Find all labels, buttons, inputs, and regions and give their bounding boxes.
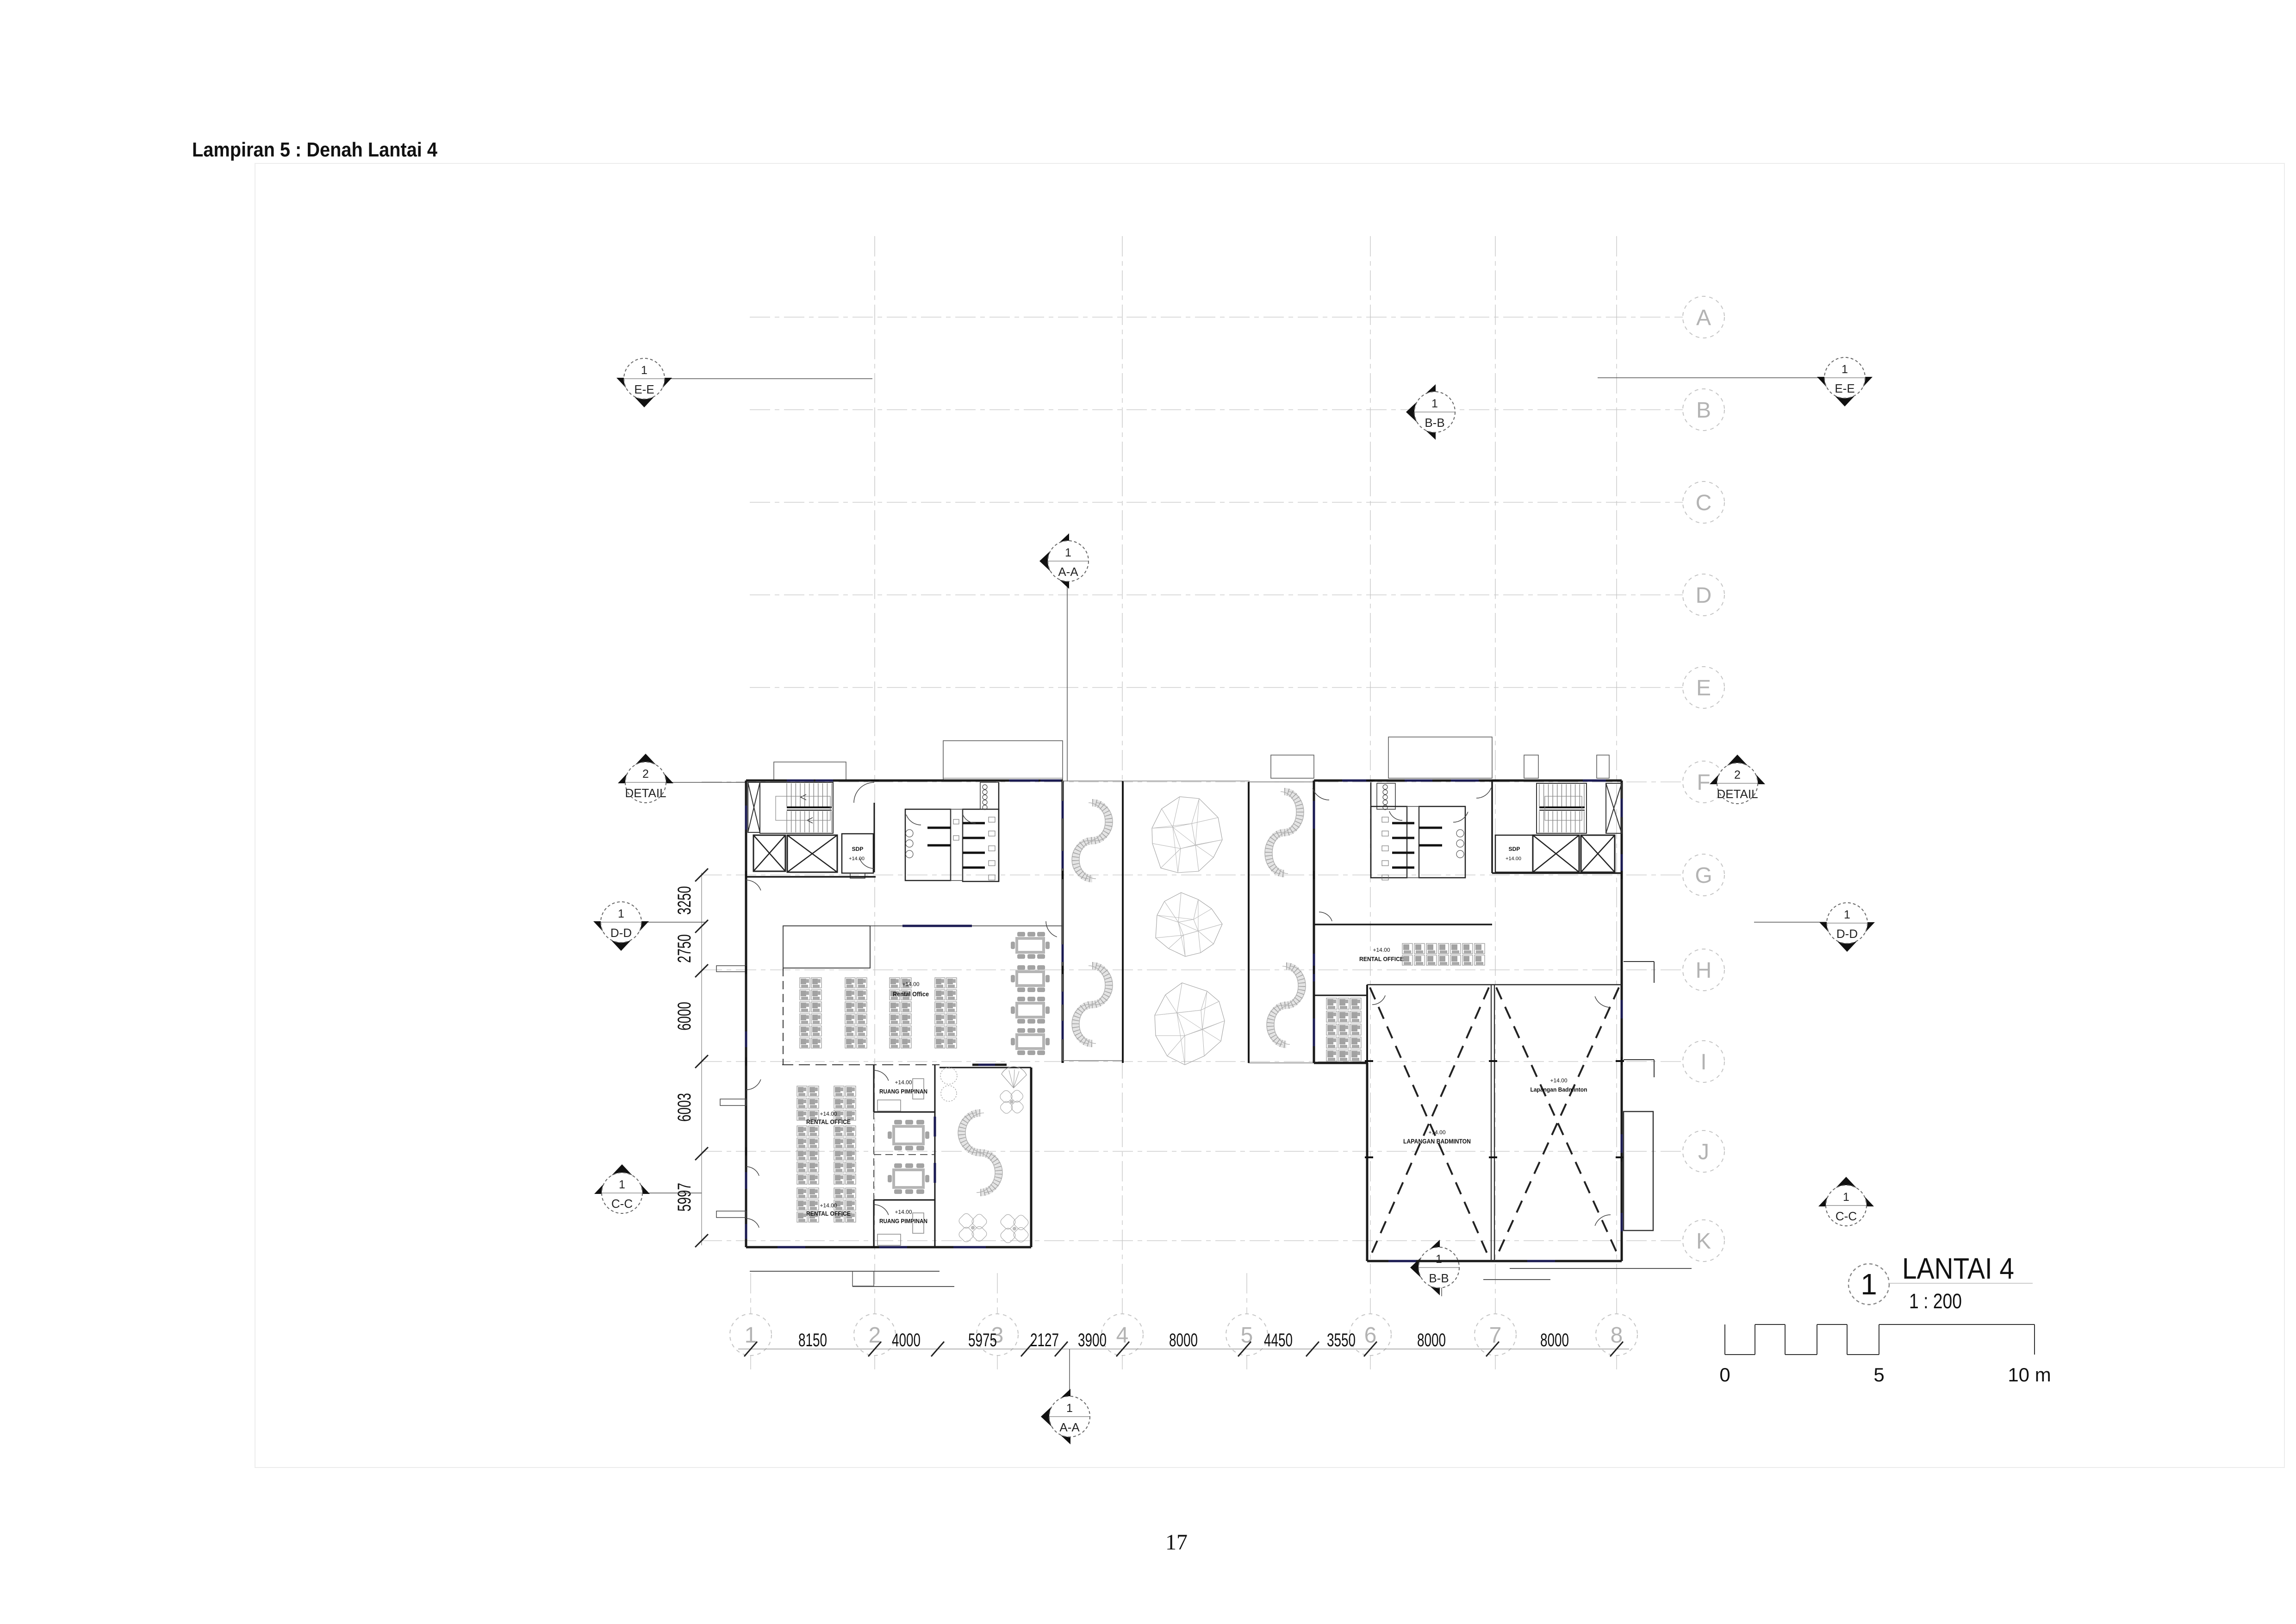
svg-text:8000: 8000 xyxy=(1169,1330,1198,1350)
svg-text:1: 1 xyxy=(1842,363,1848,376)
svg-text:RUANG PIMPINAN: RUANG PIMPINAN xyxy=(879,1088,927,1095)
svg-text:6003: 6003 xyxy=(674,1093,695,1122)
svg-text:B-B: B-B xyxy=(1429,1271,1449,1285)
svg-text:+14.00: +14.00 xyxy=(902,981,919,987)
svg-text:+14.00: +14.00 xyxy=(820,1111,837,1117)
svg-text:1: 1 xyxy=(619,1178,625,1191)
svg-text:+14.00: +14.00 xyxy=(1428,1129,1445,1136)
svg-text:RENTAL OFFICE: RENTAL OFFICE xyxy=(806,1118,851,1125)
svg-text:+14.00: +14.00 xyxy=(1506,856,1521,862)
svg-text:1 : 200: 1 : 200 xyxy=(1909,1289,1962,1313)
svg-text:1: 1 xyxy=(1843,1191,1849,1204)
svg-text:Lapangan Badminton: Lapangan Badminton xyxy=(1531,1086,1587,1093)
svg-text:1: 1 xyxy=(1844,908,1850,921)
svg-text:C: C xyxy=(1696,491,1712,515)
svg-text:1: 1 xyxy=(641,364,647,377)
svg-text:17: 17 xyxy=(1165,1530,1188,1555)
svg-text:1: 1 xyxy=(618,907,624,920)
svg-text:RUANG PIMPINAN: RUANG PIMPINAN xyxy=(879,1218,927,1224)
svg-text:2127: 2127 xyxy=(1030,1330,1059,1350)
svg-text:0: 0 xyxy=(1719,1364,1730,1386)
svg-text:E-E: E-E xyxy=(634,382,654,396)
svg-text:G: G xyxy=(1695,863,1712,888)
svg-text:5975: 5975 xyxy=(968,1330,997,1350)
svg-text:+14.00: +14.00 xyxy=(820,1202,837,1209)
svg-text:2750: 2750 xyxy=(674,934,695,963)
svg-text:5: 5 xyxy=(1241,1323,1253,1348)
svg-text:A-A: A-A xyxy=(1058,565,1078,579)
svg-text:Rental Office: Rental Office xyxy=(893,990,929,998)
svg-text:F: F xyxy=(1697,770,1710,795)
svg-text:LANTAI 4: LANTAI 4 xyxy=(1902,1252,2014,1285)
svg-text:SDP: SDP xyxy=(852,846,864,852)
svg-text:1: 1 xyxy=(1860,1268,1877,1301)
svg-text:Lampiran 5 : Denah Lantai 4: Lampiran 5 : Denah Lantai 4 xyxy=(192,138,437,161)
svg-text:2: 2 xyxy=(1734,768,1741,781)
svg-text:A: A xyxy=(1696,306,1711,330)
svg-text:B: B xyxy=(1696,398,1711,423)
svg-text:3250: 3250 xyxy=(674,886,695,915)
svg-text:6000: 6000 xyxy=(674,1002,695,1031)
svg-text:+14.00: +14.00 xyxy=(849,856,865,862)
svg-text:D-D: D-D xyxy=(610,926,632,940)
svg-text:J: J xyxy=(1698,1140,1709,1164)
svg-text:+14.00: +14.00 xyxy=(1373,947,1390,953)
svg-text:8000: 8000 xyxy=(1540,1330,1569,1350)
svg-text:+14.00: +14.00 xyxy=(895,1079,912,1086)
svg-text:RENTAL OFFICE: RENTAL OFFICE xyxy=(806,1210,851,1217)
svg-text:5: 5 xyxy=(1873,1364,1884,1386)
svg-text:+14.00: +14.00 xyxy=(895,1209,912,1215)
svg-text:8000: 8000 xyxy=(1417,1330,1446,1350)
svg-text:H: H xyxy=(1696,958,1712,983)
svg-text:K: K xyxy=(1696,1229,1711,1254)
svg-text:LAPANGAN BADMINTON: LAPANGAN BADMINTON xyxy=(1403,1137,1471,1145)
svg-text:5997: 5997 xyxy=(674,1183,695,1212)
svg-text:4450: 4450 xyxy=(1264,1330,1293,1350)
svg-text:8150: 8150 xyxy=(798,1330,827,1350)
svg-text:DETAIL: DETAIL xyxy=(1717,787,1758,801)
svg-text:RENTAL OFFICE: RENTAL OFFICE xyxy=(1359,956,1404,962)
svg-text:SDP: SDP xyxy=(1509,846,1520,852)
svg-text:C-C: C-C xyxy=(611,1197,633,1211)
svg-text:3900: 3900 xyxy=(1078,1330,1107,1350)
svg-text:+14.00: +14.00 xyxy=(1550,1077,1567,1084)
svg-text:DETAIL: DETAIL xyxy=(625,786,666,800)
svg-text:E-E: E-E xyxy=(1835,381,1854,395)
svg-text:1: 1 xyxy=(1066,1402,1073,1415)
svg-text:1: 1 xyxy=(1065,546,1071,559)
svg-text:C-C: C-C xyxy=(1836,1209,1857,1223)
svg-text:E: E xyxy=(1696,676,1711,700)
svg-text:1: 1 xyxy=(1431,397,1438,410)
svg-text:D-D: D-D xyxy=(1836,927,1858,941)
svg-text:3550: 3550 xyxy=(1327,1330,1356,1350)
svg-text:7: 7 xyxy=(1489,1323,1502,1348)
svg-text:I: I xyxy=(1700,1050,1706,1074)
svg-text:2: 2 xyxy=(642,768,649,781)
svg-text:A-A: A-A xyxy=(1059,1420,1080,1434)
svg-text:B-B: B-B xyxy=(1425,416,1444,430)
svg-text:1: 1 xyxy=(1436,1253,1442,1266)
svg-text:10 m: 10 m xyxy=(2008,1364,2051,1386)
svg-text:D: D xyxy=(1696,583,1712,608)
svg-text:4000: 4000 xyxy=(892,1330,921,1350)
